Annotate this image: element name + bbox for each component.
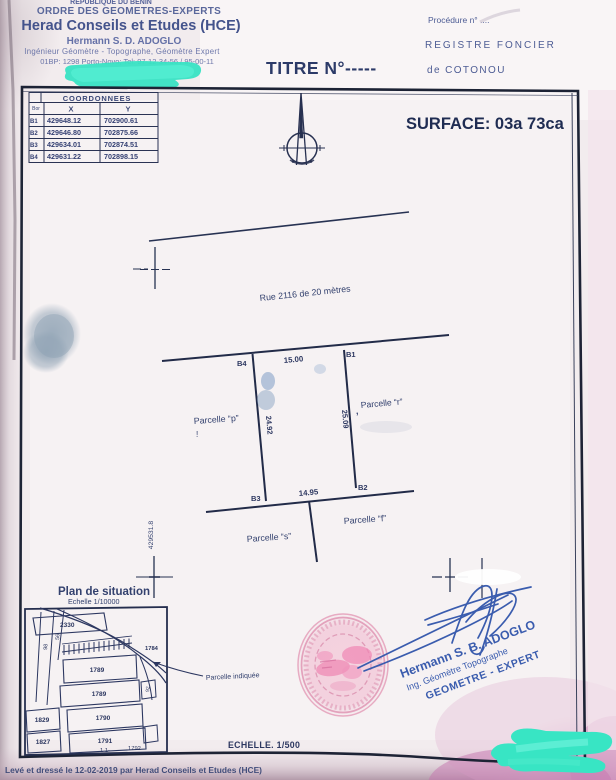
svg-text:Ingénieur Géomètre - Topograph: Ingénieur Géomètre - Topographe, Géomètr…	[24, 47, 220, 56]
svg-text:Hermann S. D. ADOGLO: Hermann S. D. ADOGLO	[67, 36, 182, 47]
svg-text:1789: 1789	[92, 691, 107, 698]
svg-text:B3: B3	[251, 494, 261, 503]
svg-text:24.92: 24.92	[264, 415, 275, 434]
svg-text:B2: B2	[30, 131, 38, 137]
svg-text:702900.61: 702900.61	[104, 116, 138, 125]
svg-text:SURFACE: 03a 73ca: SURFACE: 03a 73ca	[406, 115, 565, 133]
svg-text:Herad Conseils et Etudes (HCE): Herad Conseils et Etudes (HCE)	[21, 18, 240, 34]
svg-text:1829: 1829	[35, 717, 50, 724]
svg-text:,: ,	[356, 406, 359, 416]
svg-text:1791: 1791	[98, 738, 113, 745]
svg-text:429631.22: 429631.22	[47, 152, 81, 161]
svg-text:!: !	[196, 430, 198, 439]
svg-text:1789: 1789	[90, 667, 105, 674]
svg-text:1827: 1827	[36, 739, 51, 746]
svg-text:702875.66: 702875.66	[104, 128, 138, 137]
svg-text:ECHELLE. 1/500: ECHELLE. 1/500	[228, 740, 300, 750]
svg-text:B4: B4	[30, 155, 38, 161]
svg-text:X: X	[68, 105, 73, 114]
svg-text:ORDRE DES GEOMETRES-EXPERTS: ORDRE DES GEOMETRES-EXPERTS	[37, 6, 221, 17]
svg-text:14.95: 14.95	[298, 487, 319, 498]
svg-text:1 1·: 1 1·	[100, 748, 110, 754]
svg-text:B1: B1	[30, 119, 38, 125]
svg-text:Procédure n° ....: Procédure n° ....	[428, 15, 490, 25]
svg-text:B2: B2	[358, 483, 368, 492]
svg-text:702874.51: 702874.51	[104, 140, 138, 149]
svg-text:702898.15: 702898.15	[104, 152, 138, 161]
svg-text:429648.12: 429648.12	[47, 116, 81, 125]
svg-text:REGISTRE FONCIER: REGISTRE FONCIER	[425, 40, 556, 51]
svg-text:429634.01: 429634.01	[47, 140, 81, 149]
svg-text:15.00: 15.00	[283, 354, 304, 365]
svg-text:de COTONOU: de COTONOU	[427, 65, 506, 76]
svg-text:Y: Y	[125, 105, 130, 114]
svg-text:1784: 1784	[145, 646, 159, 652]
svg-text:56: 56	[55, 634, 62, 641]
svg-text:1792: 1792	[128, 746, 141, 752]
svg-text:1790: 1790	[96, 715, 111, 722]
svg-text:Echelle 1/10000: Echelle 1/10000	[68, 597, 120, 606]
svg-text:B1: B1	[346, 350, 356, 359]
svg-text:429531.8: 429531.8	[148, 521, 155, 550]
svg-text:B4: B4	[237, 359, 247, 368]
svg-text:COORDONNEES: COORDONNEES	[63, 94, 131, 103]
svg-text:98: 98	[43, 644, 50, 651]
svg-text:Bor: Bor	[32, 106, 40, 112]
svg-text:25.09: 25.09	[340, 409, 351, 428]
svg-text:92: 92	[145, 686, 151, 692]
svg-text:Levé et dressé le 12-02-2019 p: Levé et dressé le 12-02-2019 par Herad C…	[5, 765, 262, 775]
svg-text:429646.80: 429646.80	[47, 128, 81, 137]
svg-text:TITRE N°-----: TITRE N°-----	[266, 58, 377, 78]
svg-text:B3: B3	[30, 143, 38, 149]
